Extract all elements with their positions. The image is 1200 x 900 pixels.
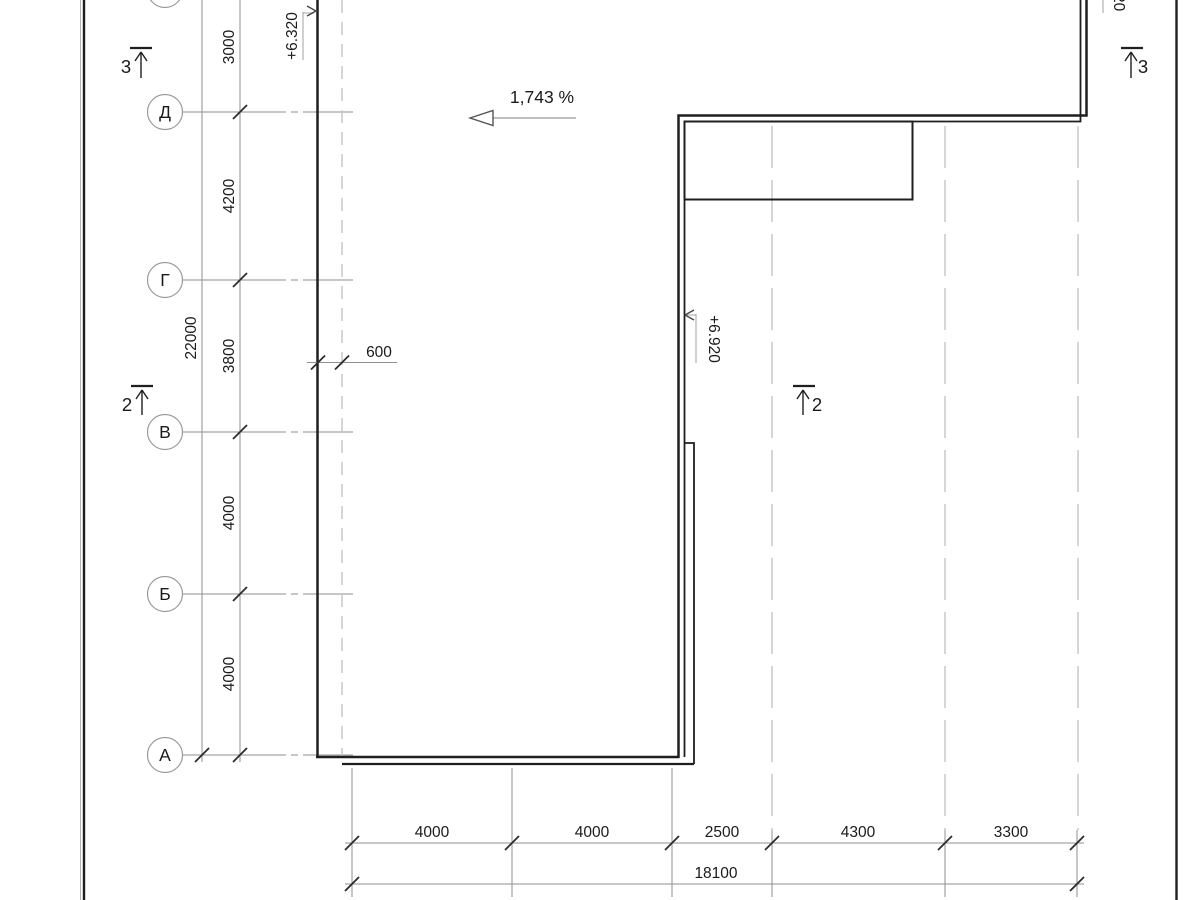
canopy-rect xyxy=(685,122,913,200)
slope-arrow-head-icon xyxy=(470,111,493,126)
dim-chain-bottom: 4000 4000 2500 4300 3300 18100 xyxy=(345,824,1084,891)
elevation-left-arrow-icon xyxy=(307,6,316,16)
building-outline xyxy=(316,0,1087,764)
dim-600-group: 600 xyxy=(307,344,397,370)
axis-label-a: А xyxy=(159,745,171,765)
section-mark-2-right: 2 xyxy=(793,386,822,415)
dim-3800: 3800 xyxy=(221,338,238,373)
section-2-right-label: 2 xyxy=(812,394,822,415)
dim-b-4000-1: 4000 xyxy=(415,824,450,841)
elevation-left-group: +6.320 xyxy=(284,6,316,60)
axis-label-v: В xyxy=(159,422,171,442)
slope-annotation: 1,743 % xyxy=(470,87,576,126)
elevation-middle-value: +6.920 xyxy=(705,315,722,363)
dim-ticks-bottom xyxy=(345,836,1084,891)
roof-plan-canvas: Д Г В Б А 3000 4200 3800 4000 4000 22000… xyxy=(0,0,1200,900)
dim-4000-v1: 4000 xyxy=(221,495,238,530)
section-2-left-label: 2 xyxy=(122,394,132,415)
elevation-left-value: +6.320 xyxy=(284,12,301,60)
axis-lines xyxy=(183,112,353,755)
wall-notch-inner xyxy=(685,0,1081,757)
dim-b-4300: 4300 xyxy=(841,824,876,841)
dim-b-2500: 2500 xyxy=(705,824,740,841)
axis-bubble-partial-top xyxy=(148,0,183,8)
axis-label-d: Д xyxy=(159,102,171,122)
dim-22000-total: 22000 xyxy=(183,316,200,359)
dim-b-18100-total: 18100 xyxy=(694,865,737,882)
dim-600: 600 xyxy=(366,344,392,361)
section-mark-3-left: 3 xyxy=(121,48,152,78)
section-mark-2-left: 2 xyxy=(122,386,153,415)
section-mark-3-right: 3 xyxy=(1121,48,1148,78)
wall-step-right xyxy=(684,443,694,764)
dim-4000-v2: 4000 xyxy=(221,656,238,691)
section-3-left-label: 3 xyxy=(121,56,131,77)
dim-b-4000-2: 4000 xyxy=(575,824,610,841)
elevation-topright-fragment: 20 xyxy=(1110,0,1127,12)
wall-notch-outer xyxy=(679,0,1087,758)
dim-4200: 4200 xyxy=(221,178,238,213)
drawing-sheet: Д Г В Б А 3000 4200 3800 4000 4000 22000… xyxy=(0,0,1200,900)
elevation-topright-group: 20 xyxy=(1103,0,1127,13)
elevation-middle-group: +6.920 xyxy=(685,310,722,363)
section-3-right-label: 3 xyxy=(1138,56,1148,77)
dim-b-3300: 3300 xyxy=(994,824,1029,841)
dim-3000: 3000 xyxy=(221,29,238,64)
axis-label-g: Г xyxy=(160,270,170,290)
axis-label-b: Б xyxy=(159,584,170,604)
slope-label: 1,743 % xyxy=(510,87,574,107)
dim-texts-left: 3000 4200 3800 4000 4000 22000 xyxy=(183,29,238,691)
